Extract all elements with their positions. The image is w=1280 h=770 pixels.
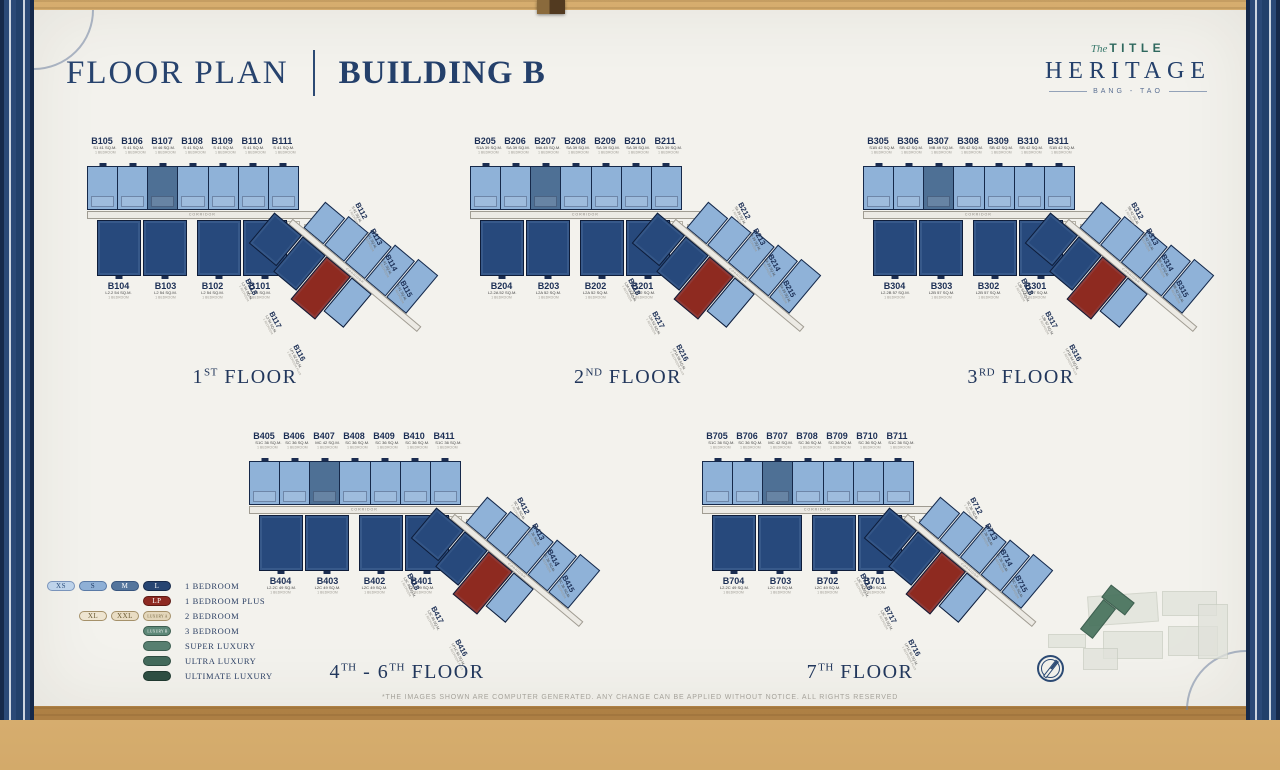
unit-B411 [431,462,460,504]
logo-rule-right [1169,91,1207,92]
unit-label-B308: B308SB 42 SQ.M.1 BEDROOM [953,137,983,158]
unit-label-B108: B108S 41 SQ.M.1 BEDROOM [177,137,207,158]
footer-disclaimer: *THE IMAGES SHOWN ARE COMPUTER GENERATED… [0,694,1280,701]
floor-caption: 3RD FLOOR [891,366,1151,389]
unit-label-B104: B104L2.2 54 SQ.M.1 BEDROOM [95,282,142,303]
unit-B705 [703,462,733,504]
unit-B105 [88,167,118,209]
unit-B202 [580,220,624,276]
building-title: BUILDING B [339,55,546,92]
unit-B406 [280,462,310,504]
corridor: CORRIDOR [87,211,317,219]
unit-B408 [340,462,370,504]
unit-label-B402: B402L2C 49 SQ.M.1 BEDROOM [351,577,398,598]
unit-label-B717: B717L2C 49 SQ.M.1 BEDROOM [869,599,901,636]
unit-label-B105: B105S1 41 SQ.M.1 BEDROOM [87,137,117,158]
legend-label: ULTIMATE LUXURY [185,671,273,681]
unit-B209 [592,167,622,209]
unit-label-B208: B208SA 39 SQ.M.1 BEDROOM [560,137,590,158]
corridor: CORRIDOR [863,211,1093,219]
legend-label: ULTRA LUXURY [185,656,256,666]
legend-row: ULTIMATE LUXURY [45,671,273,681]
header: FLOOR PLAN BUILDING B [66,50,546,96]
corridor-label: CORRIDOR [351,508,378,512]
unit-B305 [864,167,894,209]
key-plan-building [1198,604,1228,659]
unit-label-B705: B705S1C 36 SQ.M.1 BEDROOM [702,432,732,453]
unit-label-B202: B202L2A 52 SQ.M.1 BEDROOM [572,282,619,303]
legend-pill-luxury-a: LUXURY A [143,611,171,621]
unit-B311 [1045,167,1074,209]
unit-label-B708: B708SC 36 SQ.M.1 BEDROOM [792,432,822,453]
unit-B108 [178,167,208,209]
corridor-label: CORRIDOR [189,213,216,217]
unit-label-B707: B707MC 42 SQ.M.1 BEDROOM [762,432,792,453]
unit-B706 [733,462,763,504]
unit-B710 [854,462,884,504]
legend-pill-m: M [111,581,139,591]
unit-B308 [954,167,984,209]
unit-B106 [118,167,148,209]
compass-icon [1037,655,1064,682]
top-units-row [87,166,299,210]
floor-plan-5: B705S1C 36 SQ.M.1 BEDROOMB706SC 36 SQ.M.… [700,430,1060,690]
unit-label-B406: B406SC 36 SQ.M.1 BEDROOM [279,432,309,453]
unit-label-B110: B110S 41 SQ.M.1 BEDROOM [237,137,267,158]
legend-pill-s: S [79,581,107,591]
unit-label-B409: B409SC 36 SQ.M.1 BEDROOM [369,432,399,453]
legend-pill-xxl: XXL [111,611,139,621]
unit-B309 [985,167,1015,209]
unit-label-B407: B407MC 42 SQ.M.1 BEDROOM [309,432,339,453]
unit-B703 [758,515,802,571]
unit-label-B711: B711S1C 36 SQ.M.1 BEDROOM [882,432,912,453]
legend-row: SUPER LUXURY [45,641,273,651]
top-units-row [702,461,914,505]
top-unit-labels: B105S1 41 SQ.M.1 BEDROOMB106S 41 SQ.M.1 … [87,137,297,158]
unit-B302 [973,220,1017,276]
unit-label-B107: B107M 46 SQ.M.1 BEDROOM [147,137,177,158]
unit-label-B304: B304L2.2B 57 SQ.M.1 BEDROOM [871,282,918,303]
unit-label-B204: B204L2.2A 52 SQ.M.1 BEDROOM [478,282,525,303]
unit-label-B317: B317L2B 57 SQ.M.1 BEDROOM [1030,304,1062,341]
legend-pill-luxury-b: LUXURY B [143,626,171,636]
unit-B207 [531,167,561,209]
unit-label-B303: B303L2B 57 SQ.M.1 BEDROOM [918,282,965,303]
legend: XSSML1 BEDROOMLP1 BEDROOM PLUSXLXXLLUXUR… [45,581,273,686]
top-unit-labels: B305S1B 42 SQ.M.1 BEDROOMB306SB 42 SQ.M.… [863,137,1073,158]
unit-B111 [269,167,298,209]
unit-B104 [97,220,141,276]
unit-B310 [1015,167,1045,209]
unit-B203 [526,220,570,276]
legend-pill-xl: XL [79,611,107,621]
legend-pill-lp: LP [143,596,171,606]
unit-label-B206: B206SA 39 SQ.M.1 BEDROOM [500,137,530,158]
unit-B708 [793,462,823,504]
unit-B711 [884,462,913,504]
unit-label-B103: B103L2 54 SQ.M.1 BEDROOM [142,282,189,303]
logo-heritage: HERITAGE [1040,58,1216,85]
unit-label-B408: B408SC 36 SQ.M.1 BEDROOM [339,432,369,453]
floor-plan-3: B305S1B 42 SQ.M.1 BEDROOMB306SB 42 SQ.M.… [861,135,1221,395]
legend-row: XLXXLLUXURY A2 BEDROOM [45,611,273,621]
unit-label-B706: B706SC 36 SQ.M.1 BEDROOM [732,432,762,453]
unit-B307 [924,167,954,209]
corridor-label: CORRIDOR [965,213,992,217]
unit-B702 [812,515,856,571]
unit-label-B709: B709SC 36 SQ.M.1 BEDROOM [822,432,852,453]
floor-plan-4: B405S1C 36 SQ.M.1 BEDROOMB406SC 36 SQ.M.… [247,430,607,690]
unit-B211 [652,167,681,209]
unit-label-B703: B703L2C 49 SQ.M.1 BEDROOM [757,577,804,598]
page-title: FLOOR PLAN [66,55,289,92]
unit-B109 [209,167,239,209]
unit-label-B403: B403L2C 49 SQ.M.1 BEDROOM [304,577,351,598]
logo-rule-left [1049,91,1087,92]
legend-label: 1 BEDROOM PLUS [185,596,265,606]
corridor-label: CORRIDOR [572,213,599,217]
floor-caption: 7TH FLOOR [730,661,990,684]
key-plan-road [1048,634,1086,648]
right-border-decoration [1246,0,1280,720]
unit-B410 [401,462,431,504]
title-divider [313,50,315,96]
unit-B210 [622,167,652,209]
bookmark-tab [537,0,565,14]
unit-B107 [148,167,178,209]
corridor: CORRIDOR [470,211,700,219]
brand-logo: TheTITLE HERITAGE BANG - TAO [1040,40,1216,95]
unit-label-B209: B209SA 39 SQ.M.1 BEDROOM [590,137,620,158]
unit-B303 [919,220,963,276]
unit-B304 [873,220,917,276]
top-unit-labels: B705S1C 36 SQ.M.1 BEDROOMB706SC 36 SQ.M.… [702,432,912,453]
unit-B709 [824,462,854,504]
unit-label-B117: B117L2 54 SQ.M.1 BEDROOM [254,304,286,341]
unit-label-B417: B417L2C 49 SQ.M.1 BEDROOM [416,599,448,636]
legend-row: LP1 BEDROOM PLUS [45,596,273,606]
floor-caption: 2ND FLOOR [498,366,758,389]
unit-label-B210: B210SA 39 SQ.M.1 BEDROOM [620,137,650,158]
top-units-row [470,166,682,210]
unit-label-B306: B306SB 42 SQ.M.1 BEDROOM [893,137,923,158]
unit-label-B302: B302L2B 57 SQ.M.1 BEDROOM [965,282,1012,303]
legend-row: LUXURY B3 BEDROOM [45,626,273,636]
top-units-row [863,166,1075,210]
unit-label-B411: B411S1C 36 SQ.M.1 BEDROOM [429,432,459,453]
unit-B103 [143,220,187,276]
unit-B206 [501,167,531,209]
legend-pill-l: L [143,581,171,591]
floor-plan-2: B205S1A 39 SQ.M.1 BEDROOMB206SA 39 SQ.M.… [468,135,828,395]
unit-B402 [359,515,403,571]
key-plan-building [1083,648,1118,670]
logo-top-line: TheTITLE [1040,40,1216,56]
unit-label-B211: B211S2A 39 SQ.M.1 BEDROOM [650,137,680,158]
unit-label-B309: B309SB 42 SQ.M.1 BEDROOM [983,137,1013,158]
unit-B110 [239,167,269,209]
unit-B704 [712,515,756,571]
legend-pill [143,641,171,651]
unit-B102 [197,220,241,276]
site-key-plan [1048,586,1234,686]
unit-label-B106: B106S 41 SQ.M.1 BEDROOM [117,137,147,158]
unit-B204 [480,220,524,276]
legend-label: SUPER LUXURY [185,641,256,651]
legend-label: 2 BEDROOM [185,611,239,621]
logo-sub-line: BANG - TAO [1040,88,1216,95]
legend-row: XSSML1 BEDROOM [45,581,273,591]
unit-label-B410: B410SC 36 SQ.M.1 BEDROOM [399,432,429,453]
unit-B306 [894,167,924,209]
unit-label-B203: B203L2A 52 SQ.M.1 BEDROOM [525,282,572,303]
floor-caption: 4TH - 6TH FLOOR [277,661,537,684]
unit-B208 [561,167,591,209]
unit-label-B205: B205S1A 39 SQ.M.1 BEDROOM [470,137,500,158]
top-unit-labels: B405S1C 36 SQ.M.1 BEDROOMB406SC 36 SQ.M.… [249,432,459,453]
legend-pill-xs: XS [47,581,75,591]
unit-label-B311: B311S1B 42 SQ.M.1 BEDROOM [1043,137,1073,158]
legend-pill [143,671,171,681]
top-units-row [249,461,461,505]
unit-B403 [305,515,349,571]
unit-label-B710: B710SC 36 SQ.M.1 BEDROOM [852,432,882,453]
unit-label-B217: B217L2A 52 SQ.M.1 BEDROOM [637,304,669,341]
unit-label-B111: B111S 41 SQ.M.1 BEDROOM [267,137,297,158]
unit-B407 [310,462,340,504]
floor-plan-1: B105S1 41 SQ.M.1 BEDROOMB106S 41 SQ.M.1 … [85,135,445,395]
corridor: CORRIDOR [702,506,932,514]
unit-label-B310: B310SB 42 SQ.M.1 BEDROOM [1013,137,1043,158]
unit-B409 [371,462,401,504]
unit-B707 [763,462,793,504]
unit-B205 [471,167,501,209]
unit-B405 [250,462,280,504]
unit-label-B307: B307MB 49 SQ.M.1 BEDROOM [923,137,953,158]
unit-B404 [259,515,303,571]
top-unit-labels: B205S1A 39 SQ.M.1 BEDROOMB206SA 39 SQ.M.… [470,137,680,158]
legend-label: 3 BEDROOM [185,626,239,636]
logo-location: BANG - TAO [1093,88,1163,95]
unit-label-B109: B109S 41 SQ.M.1 BEDROOM [207,137,237,158]
unit-label-B102: B102L2 54 SQ.M.1 BEDROOM [189,282,236,303]
unit-label-B207: B207MA 45 SQ.M.1 BEDROOM [530,137,560,158]
unit-label-B704: B704L2.2C 49 SQ.M.1 BEDROOM [710,577,757,598]
left-border-decoration [0,0,34,720]
compass-needle [1044,660,1057,676]
logo-title: TITLE [1109,41,1165,55]
legend-row: ULTRA LUXURY [45,656,273,666]
unit-label-B702: B702L2C 49 SQ.M.1 BEDROOM [804,577,851,598]
logo-the: The [1091,43,1108,55]
legend-label: 1 BEDROOM [185,581,239,591]
corridor-label: CORRIDOR [804,508,831,512]
legend-pill [143,656,171,666]
floor-caption: 1ST FLOOR [115,366,375,389]
unit-label-B405: B405S1C 36 SQ.M.1 BEDROOM [249,432,279,453]
unit-label-B305: B305S1B 42 SQ.M.1 BEDROOM [863,137,893,158]
corridor: CORRIDOR [249,506,479,514]
